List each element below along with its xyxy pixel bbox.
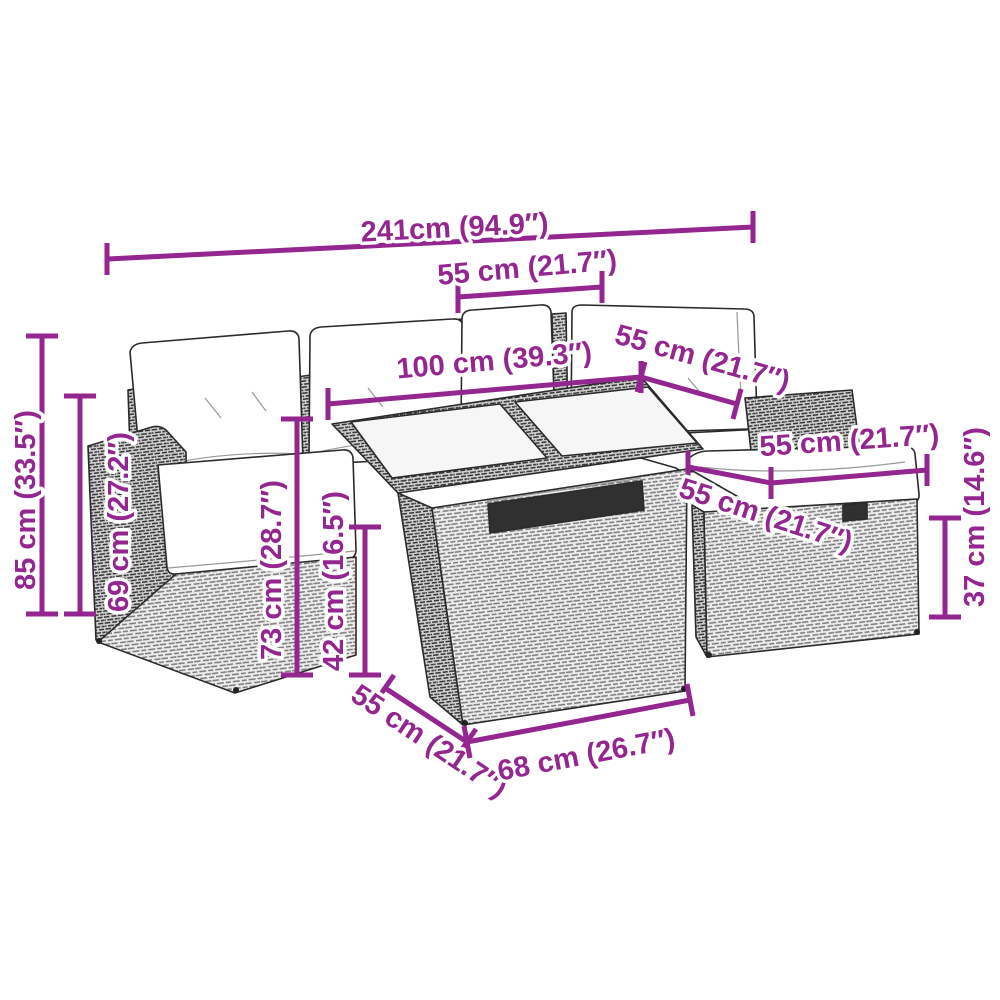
dim-total-height: 85 cm (33.5″): [10, 336, 58, 614]
dim-set-total-width: 241cm (94.9″): [107, 207, 753, 275]
table: [332, 377, 703, 725]
dim-set-total-width-label: 241cm (94.9″): [360, 207, 549, 248]
dim-back-section-width: 55 cm (21.7″): [436, 244, 618, 313]
dim-total-height-label: 85 cm (33.5″): [10, 410, 42, 590]
ottoman-handle: [843, 503, 867, 521]
diagram-canvas: 241cm (94.9″) 55 cm (21.7″) 100 cm (39.3…: [0, 0, 1000, 1000]
dim-table-height-label: 73 cm (28.7″): [256, 480, 288, 660]
dim-backrest-height-label: 69 cm (27.2″): [103, 432, 135, 612]
front-ottoman: [687, 446, 920, 657]
dim-shelf-height-label: 42 cm (16.5″): [318, 491, 350, 671]
dim-back-section-width-label: 55 cm (21.7″): [436, 244, 618, 292]
dim-shelf-height: 42 cm (16.5″): [318, 491, 381, 675]
dimension-diagram: 241cm (94.9″) 55 cm (21.7″) 100 cm (39.3…: [0, 0, 1000, 1000]
dim-ottoman-height: 37 cm (14.6″): [929, 427, 991, 617]
dim-ottoman-height-label: 37 cm (14.6″): [959, 427, 991, 607]
